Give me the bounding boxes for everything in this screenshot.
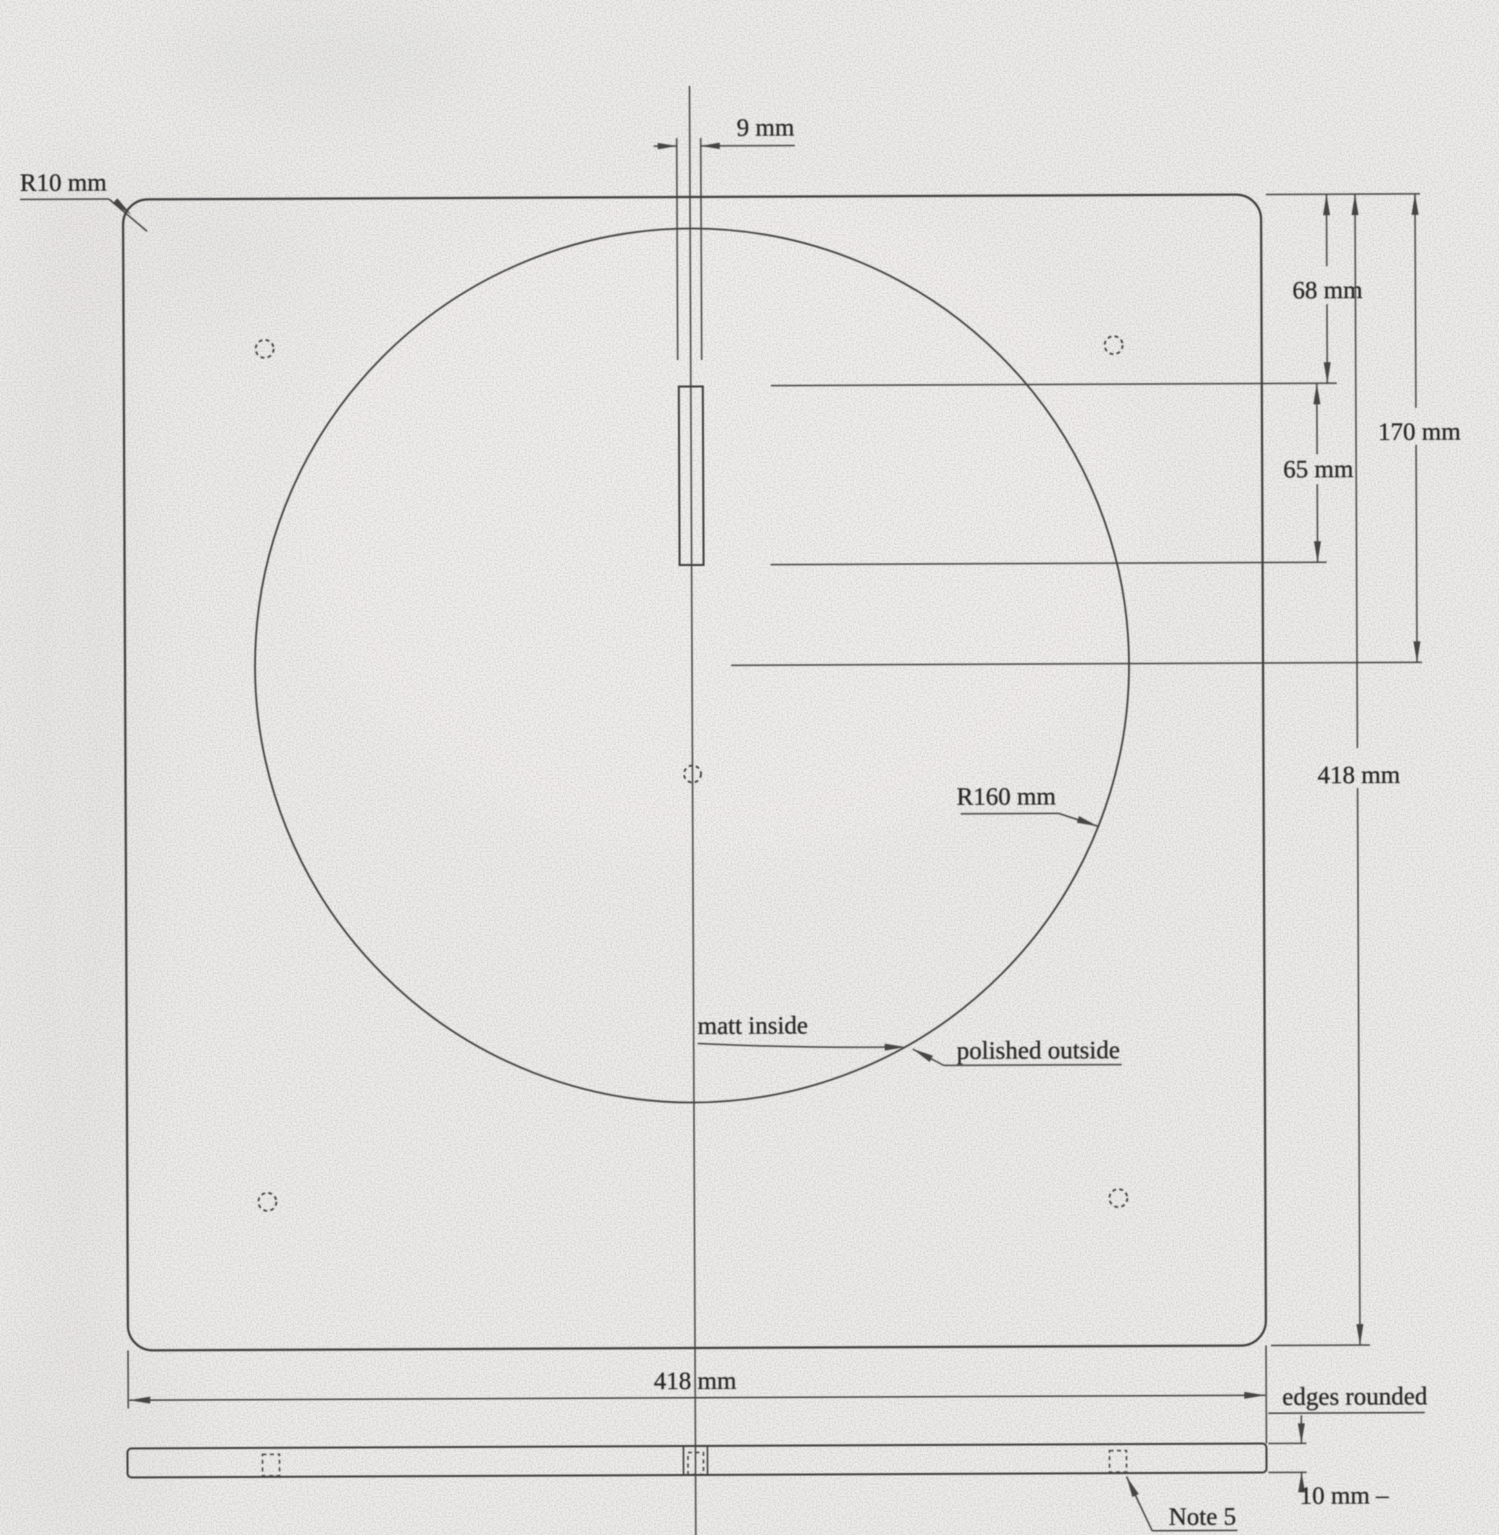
svg-text:R160 mm: R160 mm	[957, 783, 1057, 810]
svg-text:10 mm –: 10 mm –	[1300, 1482, 1390, 1509]
svg-text:polished outside: polished outside	[957, 1037, 1120, 1065]
svg-text:68 mm: 68 mm	[1292, 277, 1363, 304]
svg-text:R10 mm: R10 mm	[20, 170, 107, 197]
svg-text:65 mm: 65 mm	[1283, 456, 1354, 483]
svg-text:matt inside: matt inside	[698, 1012, 809, 1039]
svg-text:Note 5: Note 5	[1169, 1504, 1236, 1531]
svg-text:9 mm: 9 mm	[737, 115, 795, 142]
svg-text:418 mm: 418 mm	[654, 1368, 737, 1395]
svg-text:edges rounded: edges rounded	[1282, 1383, 1428, 1411]
svg-text:418 mm: 418 mm	[1317, 762, 1400, 789]
svg-text:170 mm: 170 mm	[1378, 419, 1461, 446]
